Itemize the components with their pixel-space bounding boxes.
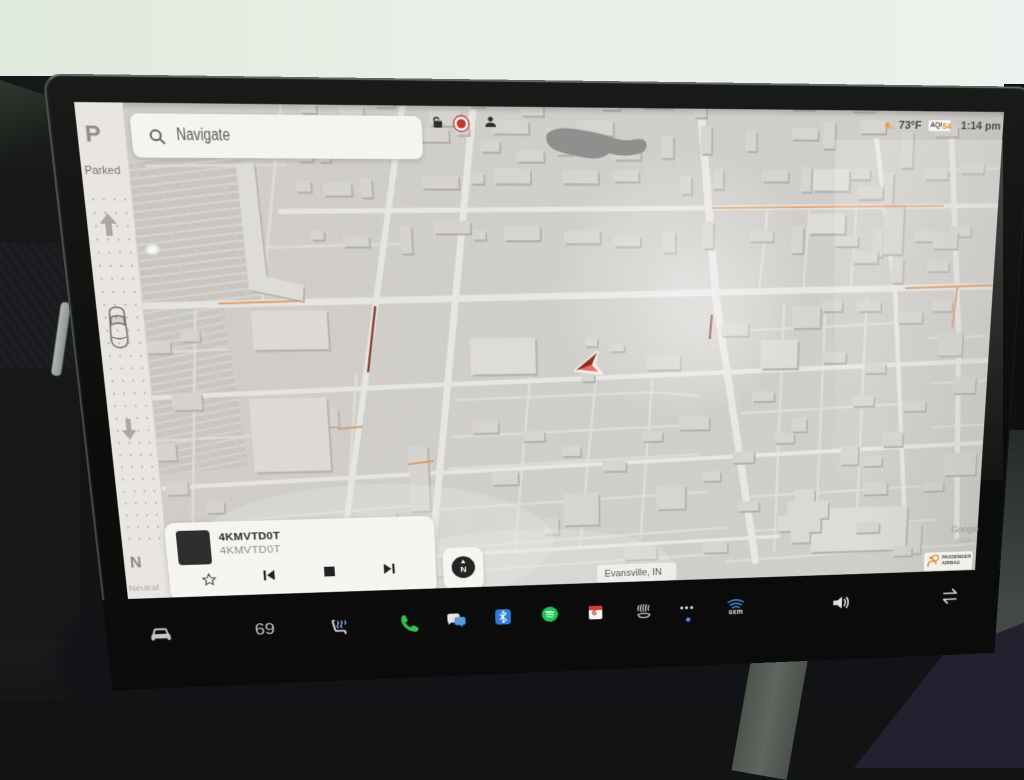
svg-text:N: N	[460, 566, 466, 575]
svg-text:sxm: sxm	[728, 608, 742, 616]
